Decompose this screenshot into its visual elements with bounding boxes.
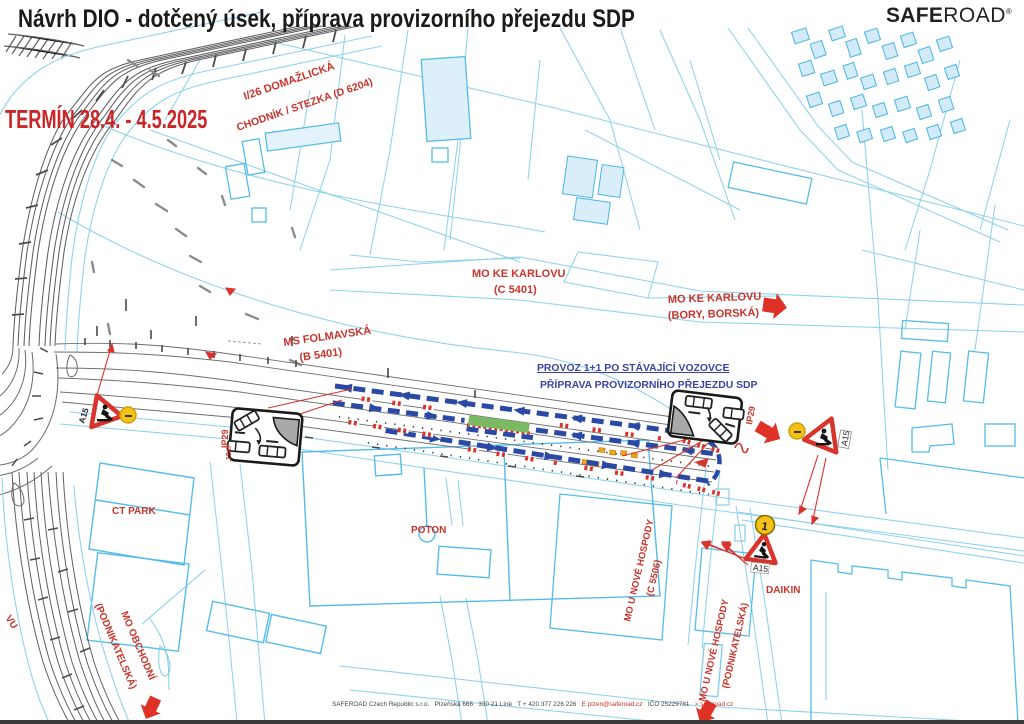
svg-text:DAIKIN: DAIKIN	[766, 585, 800, 596]
svg-text:MO KE KARLOVU: MO KE KARLOVU	[668, 291, 762, 306]
svg-text:POTON: POTON	[411, 525, 446, 536]
svg-text:(B 5401): (B 5401)	[299, 346, 343, 364]
svg-text:CT PARK: CT PARK	[112, 506, 156, 517]
svg-text:MS FOLMAVSKÁ: MS FOLMAVSKÁ	[283, 324, 372, 349]
svg-text:.13m: .13m	[226, 446, 233, 462]
svg-text:A15: A15	[76, 406, 90, 424]
svg-text:PROVOZ 1+1 PO STÁVAJÍCÍ VOZOVC: PROVOZ 1+1 PO STÁVAJÍCÍ VOZOVCE	[537, 361, 729, 374]
svg-text:A15: A15	[753, 562, 769, 574]
svg-text:(BORY, BORSKÁ): (BORY, BORSKÁ)	[668, 306, 760, 322]
svg-text:IP29: IP29	[220, 429, 230, 448]
svg-text:(C 5401): (C 5401)	[494, 284, 537, 296]
svg-text:PŘÍPRAVA PROVIZORNÍHO PŘEJEZDU: PŘÍPRAVA PROVIZORNÍHO PŘEJEZDU SDP	[540, 378, 758, 391]
svg-text:VU: VU	[3, 614, 20, 632]
svg-text:IP29: IP29	[744, 405, 757, 425]
svg-text:MO KE KARLOVU: MO KE KARLOVU	[472, 268, 566, 280]
